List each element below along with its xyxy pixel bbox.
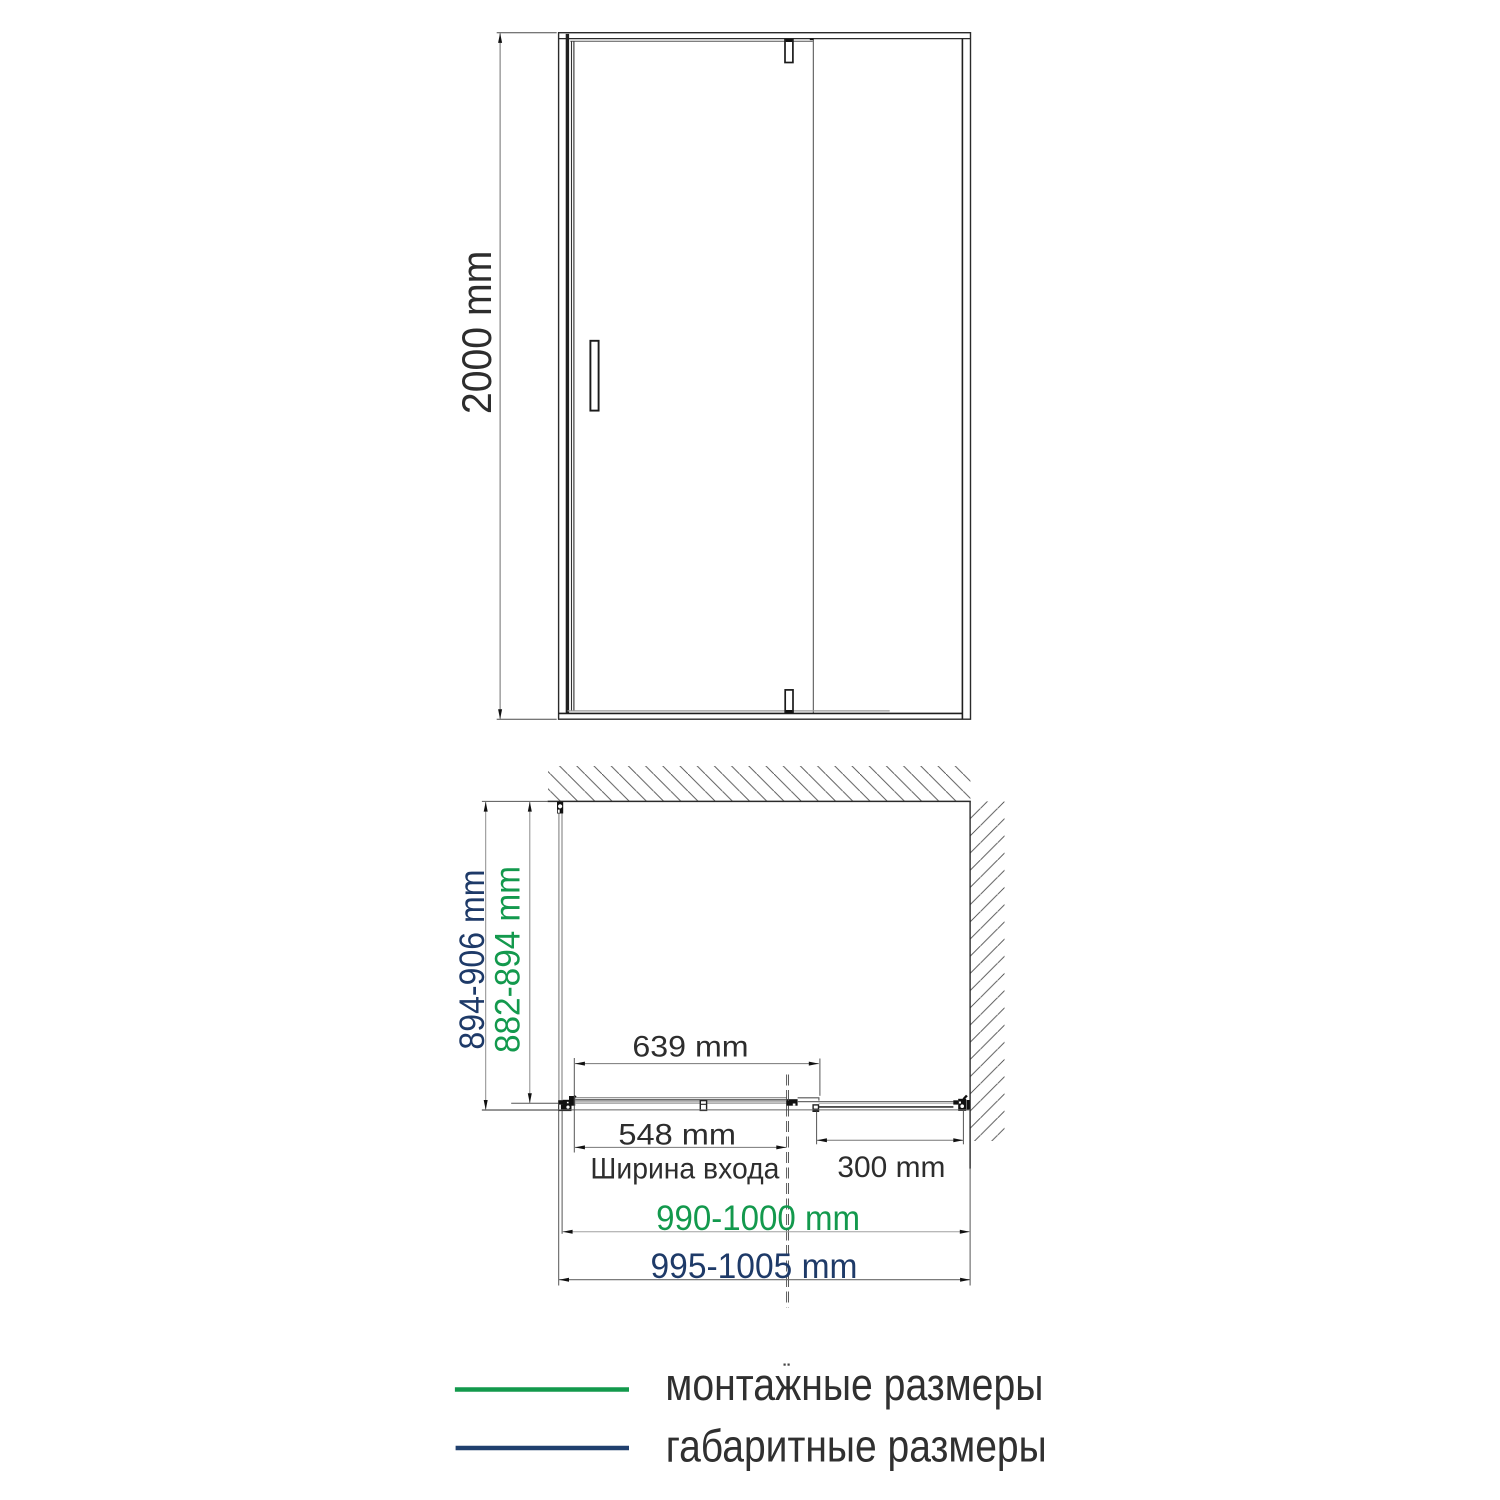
- svg-text:882-894 mm: 882-894 mm: [489, 866, 528, 1053]
- svg-text:Ширина входа: Ширина входа: [590, 1152, 780, 1185]
- svg-text:монтажные размеры: монтажные размеры: [665, 1359, 1043, 1410]
- svg-text:габаритные размеры: габаритные размеры: [666, 1421, 1047, 1472]
- svg-text:995-1005 mm: 995-1005 mm: [651, 1247, 858, 1286]
- svg-text:2000 mm: 2000 mm: [453, 251, 500, 414]
- svg-text:990-1000 mm: 990-1000 mm: [656, 1199, 860, 1238]
- svg-text:300 mm: 300 mm: [837, 1151, 945, 1184]
- svg-text:894-906 mm: 894-906 mm: [453, 870, 492, 1050]
- svg-text:639 mm: 639 mm: [632, 1030, 748, 1063]
- svg-text:548 mm: 548 mm: [618, 1119, 736, 1152]
